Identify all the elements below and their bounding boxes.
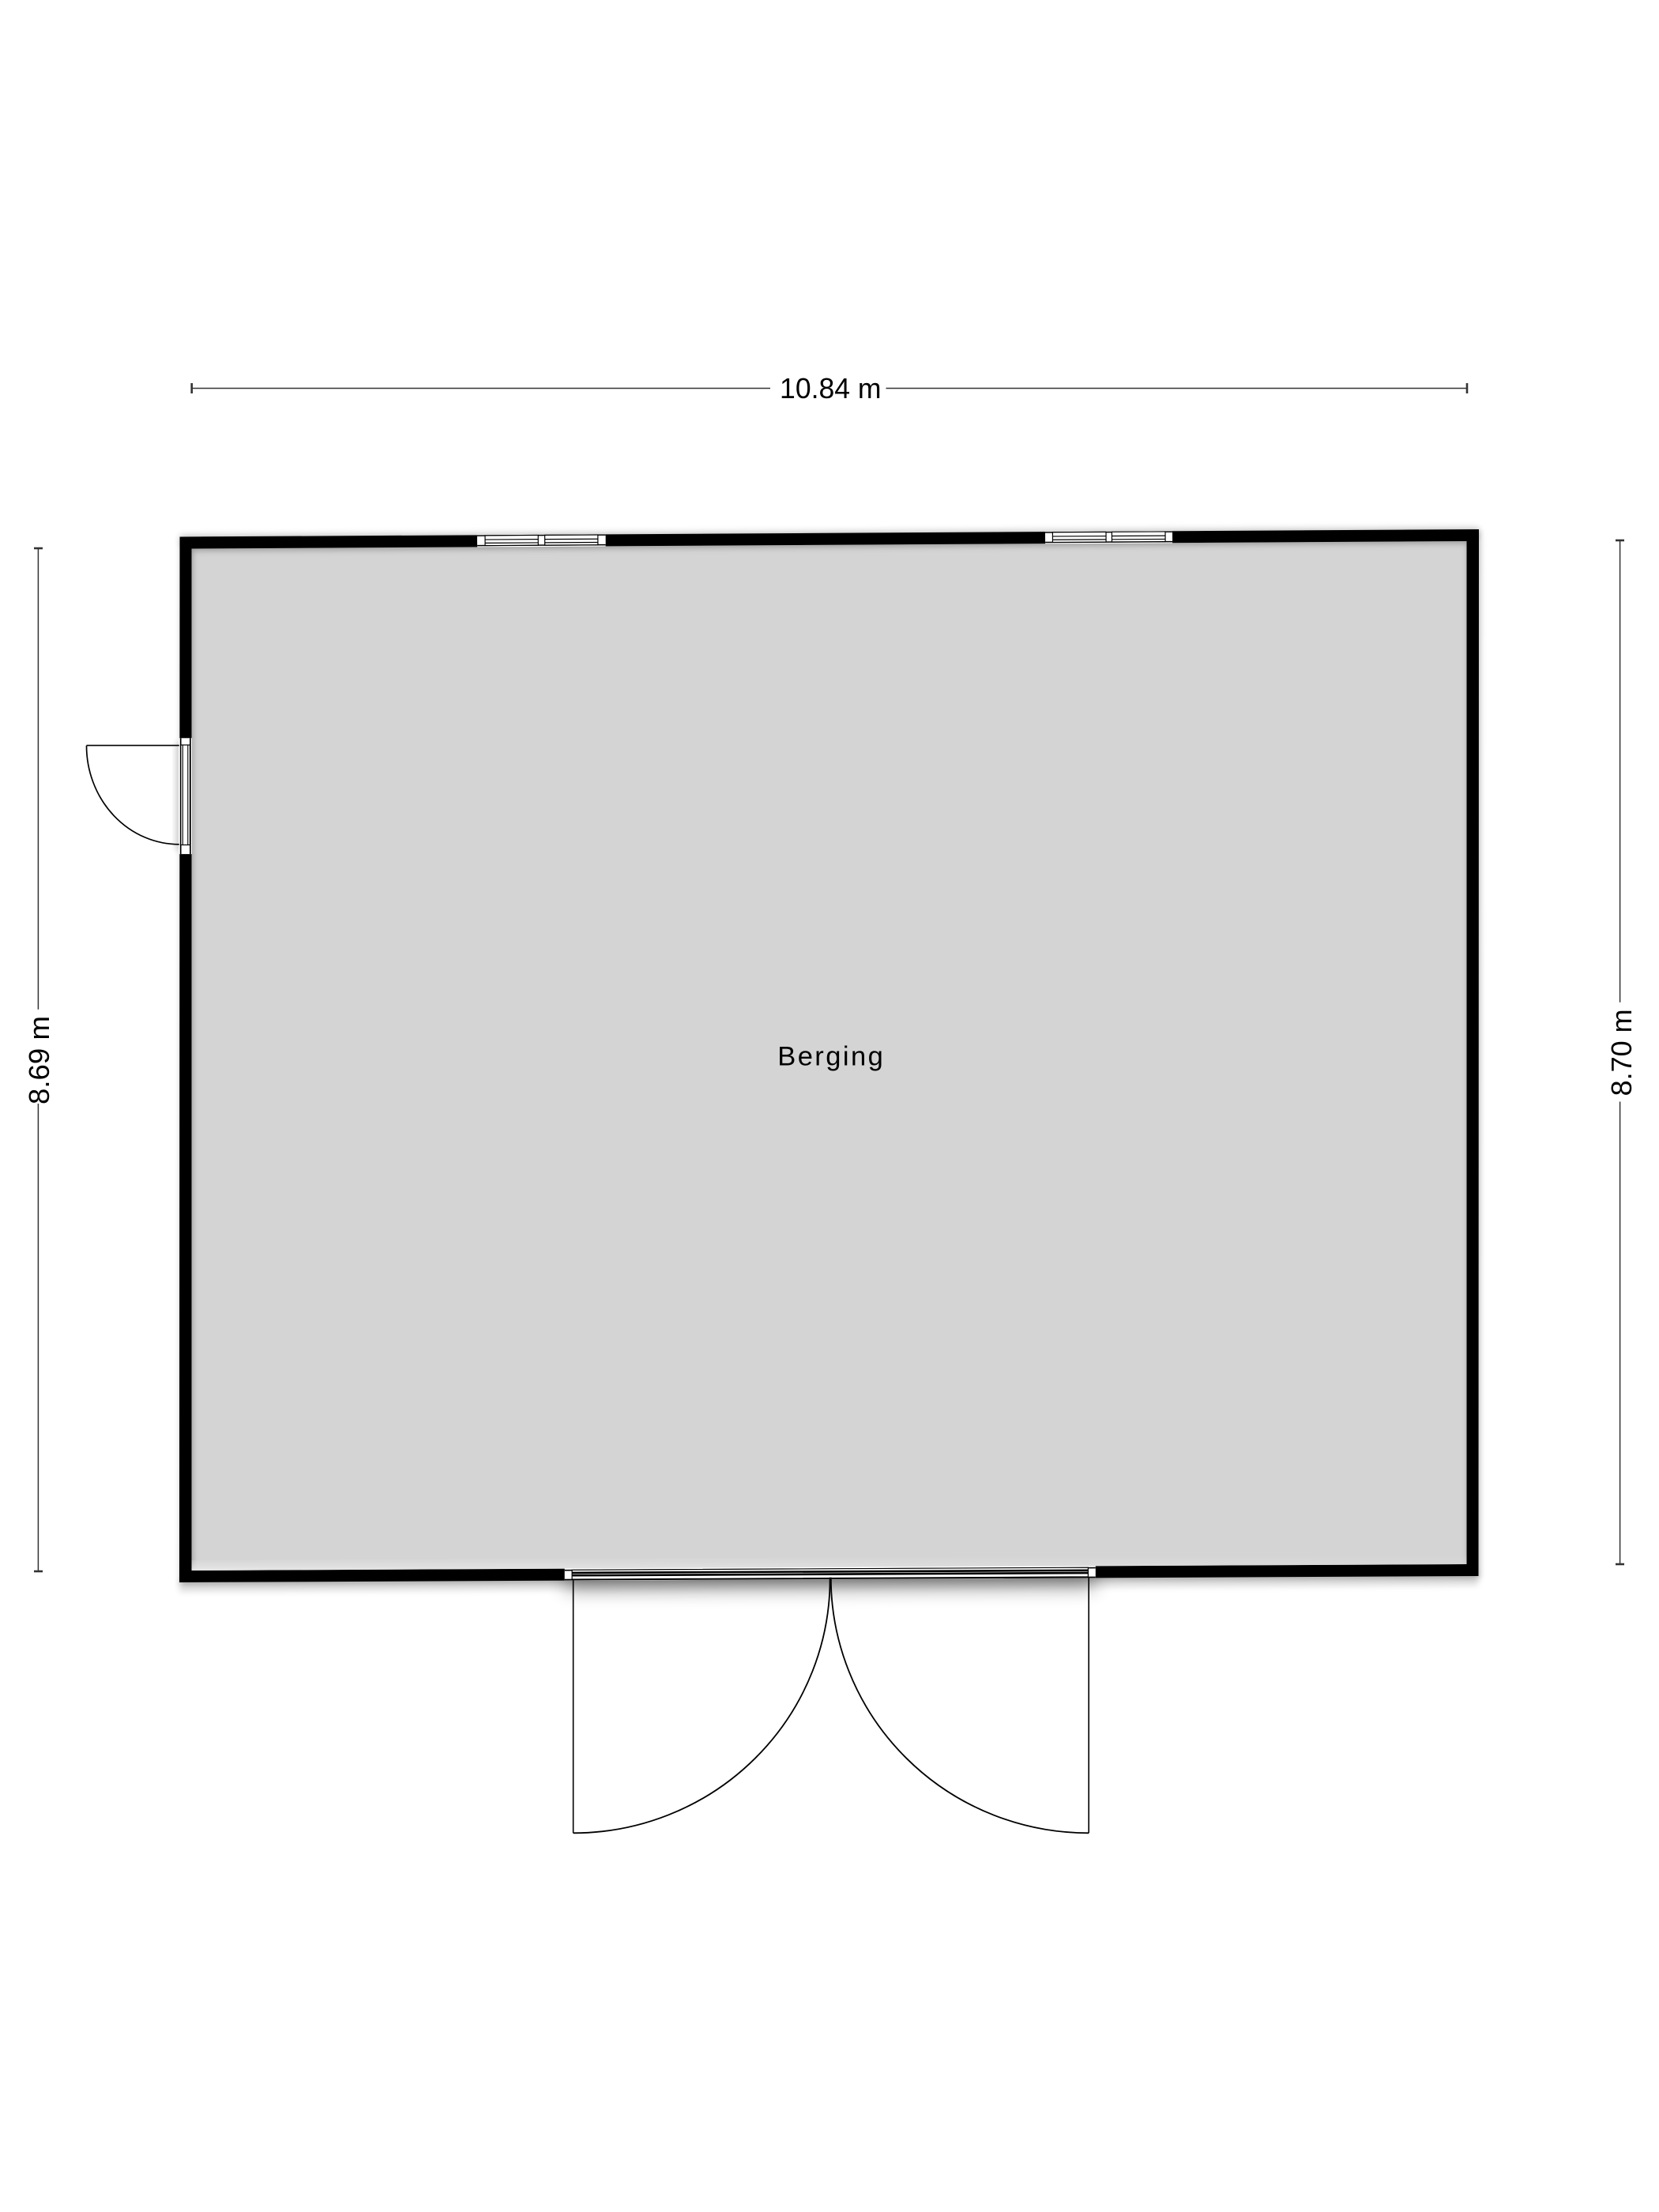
svg-text:8.70 m: 8.70 m <box>1605 1009 1638 1096</box>
svg-text:10.84 m: 10.84 m <box>780 372 882 404</box>
svg-text:Berging: Berging <box>777 1041 883 1071</box>
svg-text:8.69 m: 8.69 m <box>23 1016 55 1104</box>
